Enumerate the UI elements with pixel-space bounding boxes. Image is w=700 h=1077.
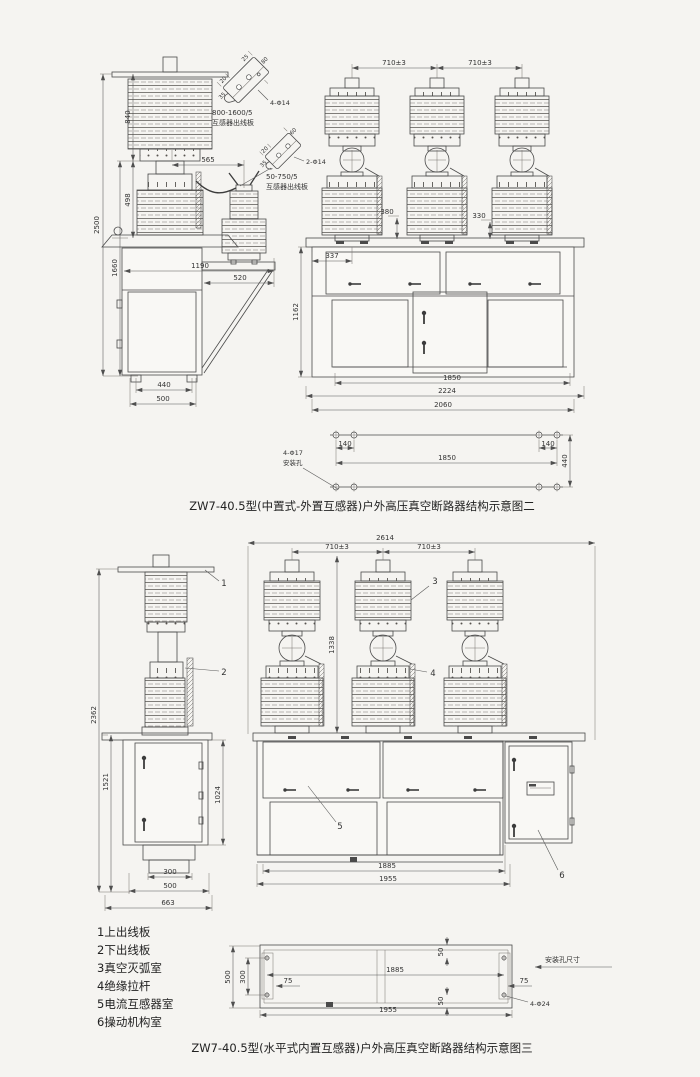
dim-440: 440 bbox=[157, 381, 170, 389]
figure-2-caption: ZW7-40.5型(中置式-外置互感器)户外高压真空断路器结构示意图二 bbox=[189, 499, 534, 513]
dim-710-left: 710±3 bbox=[325, 543, 349, 551]
dim-565: 565 bbox=[201, 156, 214, 164]
dim-2060: 2060 bbox=[434, 401, 452, 409]
dim-2362: 2362 bbox=[90, 706, 98, 724]
dim-1162: 1162 bbox=[292, 303, 300, 321]
bracket-name: 互感器出线板 bbox=[212, 118, 254, 127]
dim-depth: 440 bbox=[561, 454, 569, 467]
bracket-dim: 60 bbox=[289, 127, 299, 137]
bracket-holes-label: 4-Φ14 bbox=[270, 99, 290, 107]
figure-3: 1 2 2362 1521 1024 300 500 663 bbox=[90, 534, 612, 1055]
technical-drawing: 20 35 25 80 4-Φ14 800-1600/5 互感器出线板 20 3… bbox=[0, 0, 700, 1077]
dim-140-right: 140 bbox=[541, 440, 554, 448]
dim-50-bottom: 50 bbox=[437, 997, 445, 1006]
dim-2500: 2500 bbox=[93, 216, 101, 234]
dim-1024: 1024 bbox=[214, 786, 222, 804]
callout-5: 5 bbox=[337, 822, 342, 832]
callout-1: 1 bbox=[221, 579, 226, 589]
bracket-rating: 800-1600/5 bbox=[212, 109, 253, 117]
dim-1955: 1955 bbox=[379, 875, 397, 883]
bracket-dim: 20 bbox=[261, 145, 271, 155]
dim-300: 300 bbox=[163, 868, 176, 876]
figure-2: 20 35 25 80 4-Φ14 800-1600/5 互感器出线板 20 3… bbox=[93, 45, 584, 513]
ct-terminal-plate-large: 20 35 25 80 4-Φ14 800-1600/5 互感器出线板 bbox=[210, 45, 290, 127]
dim-1521: 1521 bbox=[102, 773, 110, 791]
fig3-front-view: 3 4 5 6 bbox=[253, 560, 585, 881]
mount-holes-label: 4-Φ17 bbox=[283, 449, 303, 457]
dim-710-left: 710±3 bbox=[382, 59, 406, 67]
legend-item-5: 5电流互感器室 bbox=[97, 997, 173, 1011]
dim-300: 300 bbox=[239, 970, 247, 983]
dim-663: 663 bbox=[161, 899, 174, 907]
dim-500: 500 bbox=[156, 395, 169, 403]
callout-3: 3 bbox=[432, 577, 437, 587]
fig3-side-view: 1 2 bbox=[102, 555, 227, 873]
pole-column bbox=[261, 560, 324, 733]
bracket-holes-label: 2-Φ14 bbox=[306, 158, 326, 166]
dim-75-right: 75 bbox=[520, 977, 529, 985]
bracket-dim: 80 bbox=[260, 56, 270, 66]
pole-column bbox=[444, 560, 507, 733]
dim-1190: 1190 bbox=[191, 262, 209, 270]
dim-710-right: 710±3 bbox=[417, 543, 441, 551]
drawing-sheet: 20 35 25 80 4-Φ14 800-1600/5 互感器出线板 20 3… bbox=[0, 0, 700, 1077]
ct-terminal-plate-small: 20 35 60 2-Φ14 50-750/5 互感器出线板 bbox=[253, 122, 326, 191]
pole-column bbox=[352, 560, 415, 733]
dim-75-left: 75 bbox=[284, 977, 293, 985]
legend-item-1: 1上出线板 bbox=[97, 925, 151, 939]
fig3-mounting-plan: 500 300 75 1885 50 50 75 1955 安装孔尺寸 4-Φ2… bbox=[224, 937, 612, 1018]
dim-380: 380 bbox=[380, 208, 393, 216]
dim-520: 520 bbox=[233, 274, 246, 282]
bracket-dim: 35 bbox=[218, 91, 228, 101]
legend-item-3: 3真空灭弧室 bbox=[97, 961, 162, 975]
dim-840: 840 bbox=[124, 110, 132, 123]
mount-holes-label: 4-Φ24 bbox=[530, 1000, 550, 1008]
bracket-name: 互感器出线板 bbox=[266, 182, 308, 191]
pole-column bbox=[407, 78, 467, 241]
legend-item-6: 6操动机构室 bbox=[97, 1015, 162, 1029]
callout-6: 6 bbox=[559, 871, 564, 881]
dim-50-top: 50 bbox=[437, 948, 445, 957]
dim-1885: 1885 bbox=[386, 966, 404, 974]
parts-legend: 1上出线板 2下出线板 3真空灭弧室 4绝缘拉杆 5电流互感器室 6操动机构室 bbox=[97, 925, 173, 1029]
fig2-mounting-plan: 140 140 1850 440 4-Φ17 安装孔 bbox=[283, 431, 573, 492]
dim-498: 498 bbox=[124, 193, 132, 206]
pole-column bbox=[492, 78, 552, 241]
dim-140-left: 140 bbox=[338, 440, 351, 448]
dim-330: 330 bbox=[472, 212, 485, 220]
fig2-side-view bbox=[102, 57, 275, 382]
fig2-front-view bbox=[306, 78, 584, 377]
ct-support-brace bbox=[202, 270, 273, 373]
dim-1850: 1850 bbox=[443, 374, 461, 382]
legend-item-4: 4绝缘拉杆 bbox=[97, 979, 151, 993]
callout-2: 2 bbox=[221, 668, 226, 678]
dim-1885: 1885 bbox=[378, 862, 396, 870]
cabinet-body bbox=[312, 247, 574, 377]
bracket-dim: 35 bbox=[259, 159, 269, 169]
dim-1850-mount: 1850 bbox=[438, 454, 456, 462]
dim-337: 337 bbox=[325, 252, 338, 260]
legend-item-2: 2下出线板 bbox=[97, 943, 151, 957]
dim-710-right: 710±3 bbox=[468, 59, 492, 67]
pole-column bbox=[322, 78, 382, 241]
dim-2224: 2224 bbox=[438, 387, 456, 395]
mechanism-box bbox=[505, 742, 574, 843]
figure-3-caption: ZW7-40.5型(水平式内置互感器)户外高压真空断路器结构示意图三 bbox=[191, 1041, 532, 1055]
dim-1955: 1955 bbox=[379, 1006, 397, 1014]
dim-500: 500 bbox=[224, 970, 232, 983]
ct-support-arm bbox=[202, 262, 275, 270]
mount-title: 安装孔尺寸 bbox=[545, 955, 580, 964]
dim-500: 500 bbox=[163, 882, 176, 890]
callout-4: 4 bbox=[430, 669, 435, 679]
dim-1338: 1338 bbox=[328, 636, 336, 654]
bracket-rating: 50-750/5 bbox=[266, 173, 298, 181]
dim-2614: 2614 bbox=[376, 534, 394, 542]
mount-holes-sublabel: 安装孔 bbox=[283, 458, 303, 467]
dim-1660: 1660 bbox=[111, 259, 119, 277]
